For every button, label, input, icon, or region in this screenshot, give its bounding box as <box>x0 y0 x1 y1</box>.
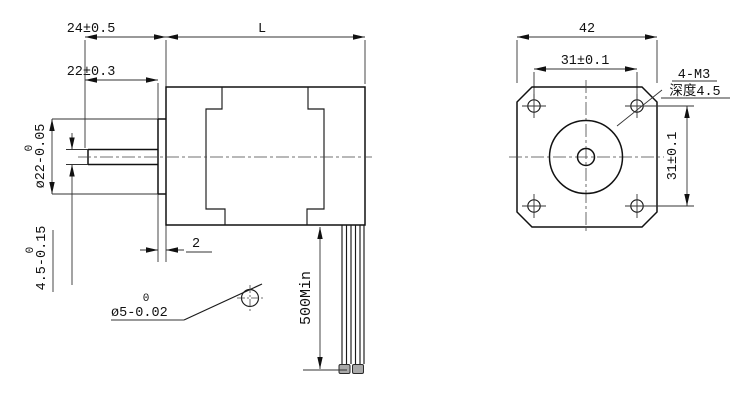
mounting-hole <box>522 94 546 118</box>
dim-shaft-dia-label: ø5-0.02 <box>111 306 168 321</box>
dim-body-length: L <box>166 22 365 37</box>
dim-shaft-flat-label: 4.5-0.15 <box>35 226 50 291</box>
dim-boss-dia-upper-label: 0 <box>24 145 36 152</box>
mounting-hole <box>522 194 546 218</box>
dim-shaft-total: 24±0.5 <box>67 22 166 37</box>
side-view: 24±0.5 L 22±0.3 <box>24 22 372 374</box>
dim-boss-height-label: 2 <box>192 237 200 252</box>
thread-callout: 4-M3 深度4.5 <box>617 68 730 126</box>
extension-lines <box>85 40 365 262</box>
front-view: 42 31±0.1 <box>509 22 730 234</box>
dim-boss-dia: ø22-0.05 0 <box>24 119 52 194</box>
dim-shaft-dia-upper-label: 0 <box>143 293 150 305</box>
dim-shaft-exposed-label: 22±0.3 <box>67 65 116 80</box>
dim-boss-dia-label: ø22-0.05 <box>34 124 49 189</box>
dim-boss-height: 2 <box>140 237 212 252</box>
drawing-canvas: 24±0.5 L 22±0.3 <box>0 0 743 404</box>
dim-shaft-total-label: 24±0.5 <box>67 22 116 37</box>
dim-shaft-flat-upper-label: 0 <box>25 247 37 254</box>
dim-wire-length: 500Min <box>298 227 347 370</box>
thread-depth-label: 深度4.5 <box>669 83 720 100</box>
pilot-boss <box>52 119 166 194</box>
dim-wire-length-label: 500Min <box>298 271 315 325</box>
dim-body-width: 42 <box>517 22 657 83</box>
motor-body-outline <box>166 87 365 225</box>
dim-shaft-exposed: 22±0.3 <box>67 65 158 80</box>
dim-hole-spacing-horizontal: 31±0.1 <box>534 54 637 99</box>
mounting-holes <box>522 94 649 218</box>
dim-hole-spacing-vertical: 31±0.1 <box>644 106 694 206</box>
motor-dimension-drawing: 24±0.5 L 22±0.3 <box>0 0 743 404</box>
dim-body-width-label: 42 <box>579 22 595 37</box>
lead-wires <box>339 225 364 374</box>
wire-end-cap <box>339 365 350 374</box>
dim-shaft-dia: ø5-0.02 0 <box>111 284 263 321</box>
dim-hole-spacing-horizontal-label: 31±0.1 <box>561 54 610 69</box>
shaft-section-detail <box>237 285 263 311</box>
wire-end-cap <box>353 365 364 374</box>
dim-body-length-label: L <box>258 22 266 37</box>
dim-hole-spacing-vertical-label: 31±0.1 <box>666 132 681 181</box>
